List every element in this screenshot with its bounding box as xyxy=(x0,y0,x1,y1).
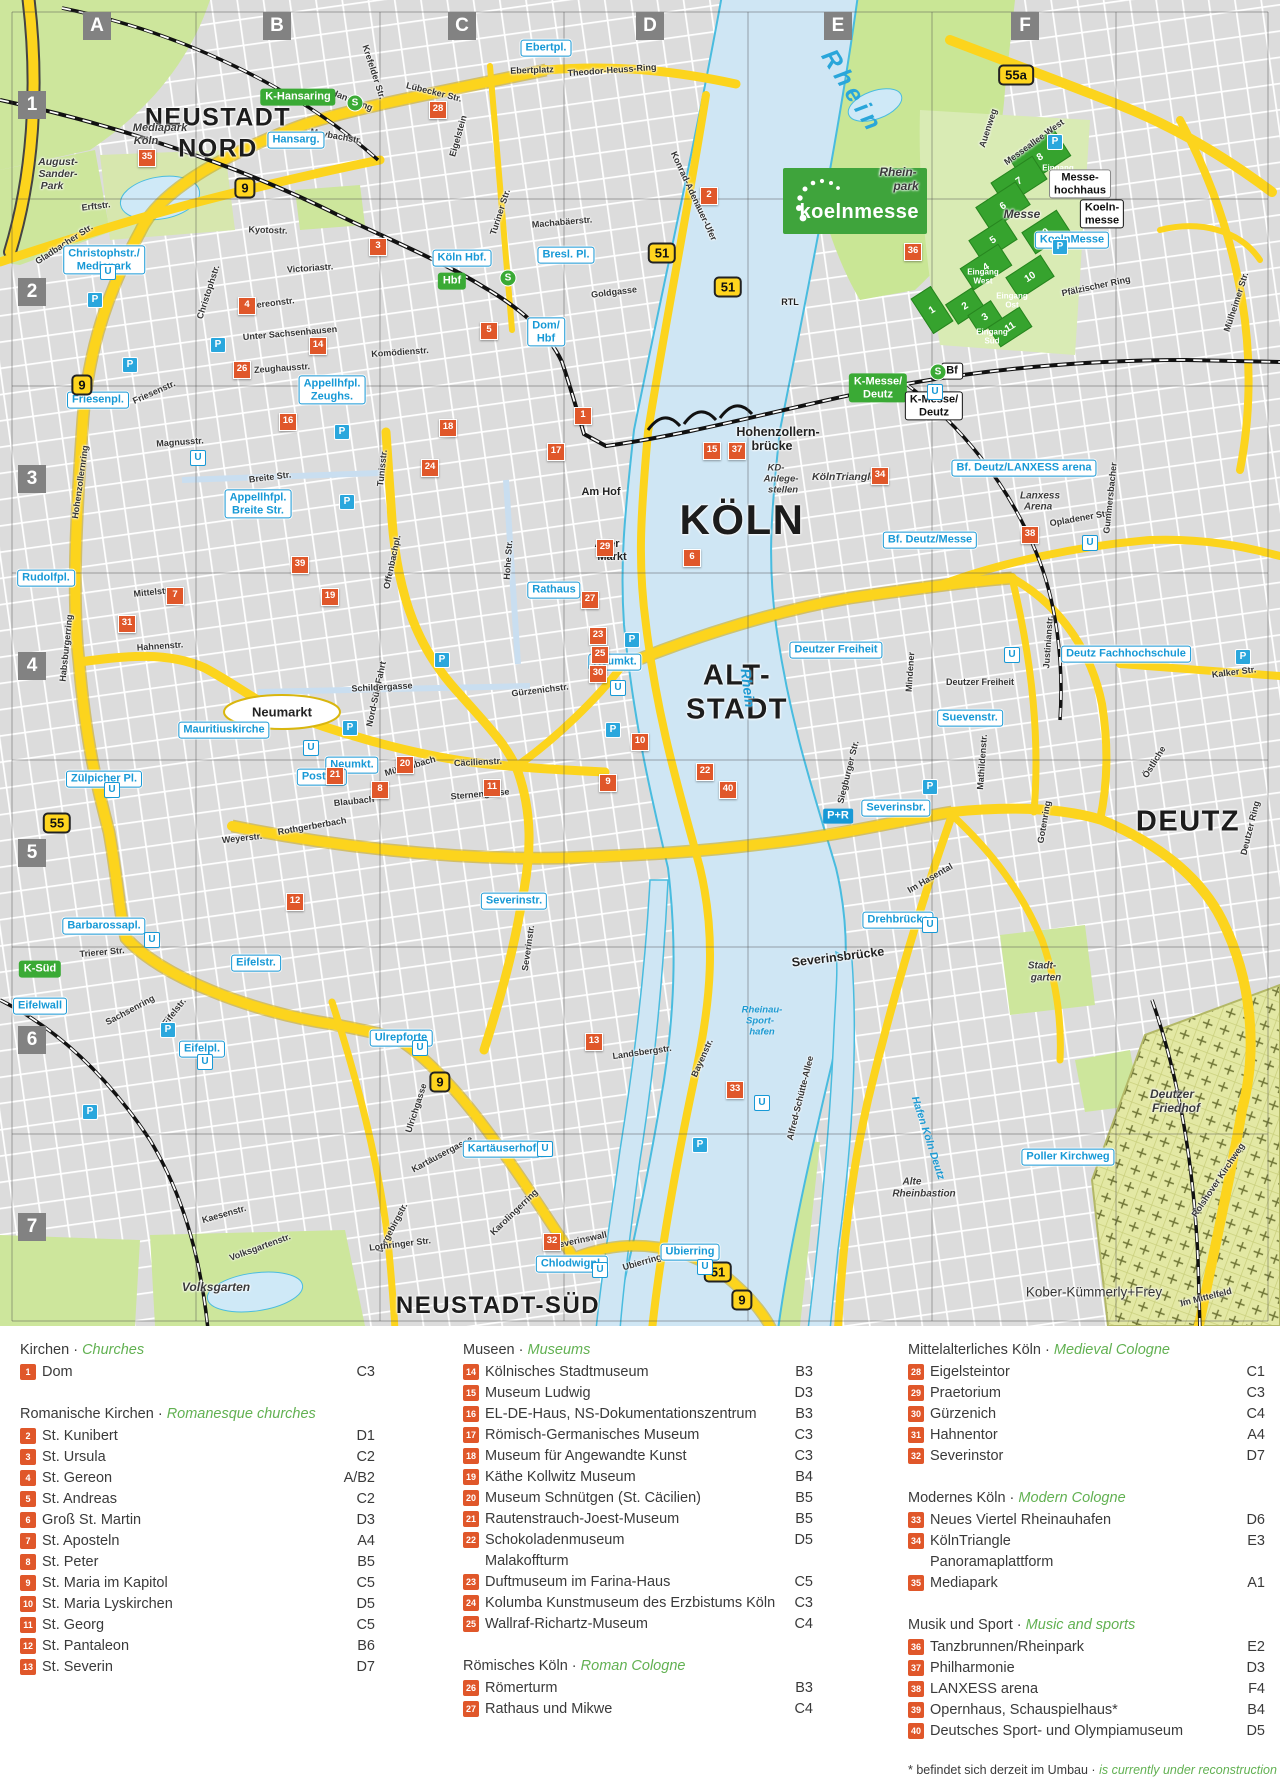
poi-marker-36[interactable]: 36 xyxy=(904,243,922,261)
u-bahn-icon[interactable]: U xyxy=(592,1262,608,1278)
legend-item-gridref: A1 xyxy=(1247,1575,1265,1591)
map-badge[interactable]: Poller Kirchweg xyxy=(1021,1149,1114,1166)
map-badge[interactable]: Appellhfpl.Breite Str. xyxy=(225,489,292,518)
legend-item-label: Gürzenich xyxy=(930,1406,1246,1422)
legend-item-label: Tanzbrunnen/Rheinpark xyxy=(930,1639,1247,1655)
legend-item-gridref: C4 xyxy=(794,1701,813,1717)
poi-marker-5[interactable]: 5 xyxy=(480,322,498,340)
legend-item-number: 33 xyxy=(908,1512,924,1528)
grid-row-label-2: 2 xyxy=(18,278,46,306)
map-badge[interactable]: Ubierring xyxy=(661,1244,720,1261)
legend-item-gridref: C3 xyxy=(1246,1385,1265,1401)
legend-item-number: 17 xyxy=(463,1427,479,1443)
legend-item-gridref: C3 xyxy=(794,1448,813,1464)
u-bahn-icon[interactable]: U xyxy=(754,1095,770,1111)
legend-section: Museen · Museums14Kölnisches Stadtmuseum… xyxy=(463,1340,813,1634)
legend-item-number xyxy=(463,1553,479,1569)
legend-item: 10St. Maria LyskirchenD5 xyxy=(20,1593,375,1614)
grid-col-label-A: A xyxy=(83,12,111,40)
u-bahn-icon[interactable]: U xyxy=(412,1040,428,1056)
poi-marker-18[interactable]: 18 xyxy=(439,419,457,437)
legend-item-gridref: B3 xyxy=(795,1680,813,1696)
legend-item-number: 25 xyxy=(463,1616,479,1632)
poi-marker-11[interactable]: 11 xyxy=(483,779,501,797)
poi-marker-14[interactable]: 14 xyxy=(309,337,327,355)
map-label: KD- xyxy=(768,463,785,474)
legend-item: 8St. PeterB5 xyxy=(20,1551,375,1572)
legend-item-gridref: C2 xyxy=(356,1449,375,1465)
legend-item-label: St. Maria im Kapitol xyxy=(42,1575,356,1591)
title-separator: · xyxy=(515,1342,528,1358)
legend-item: 34KölnTriangleE3 xyxy=(908,1530,1265,1551)
map-badge[interactable]: Severinstr. xyxy=(481,893,547,910)
legend-section-title: Musik und Sport · Music and sports xyxy=(908,1615,1265,1636)
grid-row-label-7: 7 xyxy=(18,1213,46,1241)
map-label: Neumarkt xyxy=(252,705,312,720)
legend-item-label: Severinstor xyxy=(930,1448,1246,1464)
legend-item-gridref: C3 xyxy=(356,1364,375,1380)
legend-item-number: 27 xyxy=(463,1701,479,1717)
legend-item-number: 35 xyxy=(908,1575,924,1591)
poi-marker-34[interactable]: 34 xyxy=(871,467,889,485)
legend-item: 3St. UrsulaC2 xyxy=(20,1446,375,1467)
legend-item-gridref: F4 xyxy=(1248,1681,1265,1697)
poi-marker-27[interactable]: 27 xyxy=(581,591,599,609)
legend-title-de: Romanische Kirchen xyxy=(20,1406,154,1422)
map-label: Arena xyxy=(1024,502,1052,513)
legend-item-label: Wallraf-Richartz-Museum xyxy=(485,1616,794,1632)
footnote-separator: · xyxy=(1088,1763,1099,1777)
badge-line: Deutz xyxy=(910,406,958,419)
map-badge[interactable]: Bresl. Pl. xyxy=(537,247,594,264)
legend-item: 11St. GeorgC5 xyxy=(20,1614,375,1635)
u-bahn-icon[interactable]: U xyxy=(100,264,116,280)
poi-marker-22[interactable]: 22 xyxy=(696,763,714,781)
legend-item: 20Museum Schnütgen (St. Cäcilien)B5 xyxy=(463,1487,813,1508)
map-badge[interactable]: Hansarg. xyxy=(267,132,324,149)
legend-item: 31HahnentorA4 xyxy=(908,1424,1265,1445)
map-badge[interactable]: Kartäuserhof xyxy=(463,1141,541,1158)
legend-item-gridref: E3 xyxy=(1247,1533,1265,1549)
legend-item-label: Eigelsteintor xyxy=(930,1364,1246,1380)
u-bahn-icon[interactable]: U xyxy=(927,384,943,400)
legend-section: Musik und Sport · Music and sports36Tanz… xyxy=(908,1615,1265,1741)
koelnmesse-logo-text: koelnmesse xyxy=(799,201,919,224)
legend-item: 24Kolumba Kunstmuseum des Erzbistums Köl… xyxy=(463,1592,813,1613)
legend-item-gridref: B3 xyxy=(795,1406,813,1422)
legend-item-label: Panoramaplattform xyxy=(930,1554,1265,1570)
legend-item: 30GürzenichC4 xyxy=(908,1403,1265,1424)
legend-item-gridref: C5 xyxy=(356,1617,375,1633)
legend-item-label: St. Aposteln xyxy=(42,1533,357,1549)
badge-line: Appellhfpl. xyxy=(304,377,361,390)
legend-item-number: 31 xyxy=(908,1427,924,1443)
legend-title-de: Kirchen xyxy=(20,1342,69,1358)
route-badge: 51 xyxy=(714,277,742,298)
map-legend: Kirchen · Churches1DomC3Romanische Kirch… xyxy=(0,1326,1280,1776)
map-label: ALT- xyxy=(703,660,771,693)
parking-icon[interactable]: P xyxy=(1235,649,1251,665)
map-badge[interactable]: Appellhfpl.Zeughs. xyxy=(299,375,366,404)
u-bahn-icon[interactable]: U xyxy=(697,1259,713,1275)
legend-section: Mittelalterliches Köln · Medieval Cologn… xyxy=(908,1340,1265,1466)
legend-item-number: 37 xyxy=(908,1660,924,1676)
grid-col-label-D: D xyxy=(636,12,664,40)
grid-col-label-B: B xyxy=(263,12,291,40)
map-badge[interactable]: Bf. Deutz/Messe xyxy=(883,532,977,549)
legend-item-label: Rathaus und Mikwe xyxy=(485,1701,794,1717)
parking-icon[interactable]: P xyxy=(342,720,358,736)
parking-icon[interactable]: P xyxy=(922,779,938,795)
legend-item-number: 6 xyxy=(20,1512,36,1528)
title-separator: · xyxy=(1041,1342,1054,1358)
parking-icon[interactable]: P xyxy=(339,494,355,510)
legend-item: Panoramaplattform xyxy=(908,1551,1265,1572)
legend-item: 13St. SeverinD7 xyxy=(20,1656,375,1677)
map-badge[interactable]: Deutz Fachhochschule xyxy=(1061,646,1191,663)
poi-marker-24[interactable]: 24 xyxy=(421,459,439,477)
grid-row-label-5: 5 xyxy=(18,839,46,867)
poi-marker-25[interactable]: 25 xyxy=(591,646,609,664)
poi-marker-26[interactable]: 26 xyxy=(233,361,251,379)
poi-marker-31[interactable]: 31 xyxy=(118,615,136,633)
poi-marker-30[interactable]: 30 xyxy=(589,665,607,683)
map-label: Anlege- xyxy=(764,474,799,485)
legend-item-label: Groß St. Martin xyxy=(42,1512,356,1528)
map-label: garten xyxy=(1031,973,1062,984)
poi-marker-13[interactable]: 13 xyxy=(585,1033,603,1051)
legend-item-number: 30 xyxy=(908,1406,924,1422)
poi-marker-7[interactable]: 7 xyxy=(166,587,184,605)
street-label: Kyotostr. xyxy=(248,224,287,235)
title-separator: · xyxy=(69,1342,82,1358)
legend-item-number: 10 xyxy=(20,1596,36,1612)
parking-icon[interactable]: P xyxy=(605,722,621,738)
badge-line: Hbf xyxy=(532,332,560,345)
map-badge[interactable]: Ebertpl. xyxy=(521,40,572,57)
poi-marker-3[interactable]: 3 xyxy=(369,238,387,256)
parking-icon[interactable]: P xyxy=(160,1022,176,1038)
u-bahn-icon[interactable]: U xyxy=(303,740,319,756)
map-label: Rhein- xyxy=(879,165,916,179)
parking-icon[interactable]: P xyxy=(87,292,103,308)
legend-item-number: 8 xyxy=(20,1554,36,1570)
u-bahn-icon[interactable]: U xyxy=(1082,535,1098,551)
map-badge[interactable]: Dom/Hbf xyxy=(527,317,565,346)
map-badge[interactable]: K-Hansaring xyxy=(260,89,335,106)
legend-item-number: 15 xyxy=(463,1385,479,1401)
grid-row-label-3: 3 xyxy=(18,465,46,493)
title-separator: · xyxy=(568,1658,581,1674)
legend-item: 33Neues Viertel RheinauhafenD6 xyxy=(908,1509,1265,1530)
poi-marker-21[interactable]: 21 xyxy=(326,767,344,785)
legend-item-label: Römerturm xyxy=(485,1680,795,1696)
legend-title-en: Modern Cologne xyxy=(1018,1490,1125,1506)
parking-icon[interactable]: P xyxy=(434,652,450,668)
footnote-en: is currently under reconstruction xyxy=(1099,1763,1277,1777)
badge-line: K-Messe/ xyxy=(854,375,902,388)
legend-column-1: Kirchen · Churches1DomC3Romanische Kirch… xyxy=(20,1340,375,1699)
poi-marker-32[interactable]: 32 xyxy=(543,1233,561,1251)
poi-marker-2[interactable]: 2 xyxy=(700,187,718,205)
grid-col-label-C: C xyxy=(448,12,476,40)
legend-item-label: KölnTriangle xyxy=(930,1533,1247,1549)
legend-item-gridref: C1 xyxy=(1246,1364,1265,1380)
legend-title-en: Museums xyxy=(527,1342,590,1358)
poi-marker-37[interactable]: 37 xyxy=(728,442,746,460)
legend-item-number: 13 xyxy=(20,1659,36,1675)
legend-item: 39Opernhaus, Schauspielhaus*B4 xyxy=(908,1699,1265,1720)
poi-marker-9[interactable]: 9 xyxy=(599,774,617,792)
parking-icon[interactable]: P xyxy=(692,1137,708,1153)
legend-section-title: Römisches Köln · Roman Cologne xyxy=(463,1656,813,1677)
poi-marker-16[interactable]: 16 xyxy=(279,413,297,431)
badge-line: Dom/ xyxy=(532,319,560,332)
grid-col-label-E: E xyxy=(824,12,852,40)
poi-marker-20[interactable]: 20 xyxy=(396,756,414,774)
map-label: Sport- xyxy=(746,1016,774,1027)
poi-marker-1[interactable]: 1 xyxy=(574,407,592,425)
legend-section: Kirchen · Churches1DomC3 xyxy=(20,1340,375,1382)
legend-item-label: St. Andreas xyxy=(42,1491,356,1507)
legend-item-number: 23 xyxy=(463,1574,479,1590)
legend-item: 22SchokoladenmuseumD5 xyxy=(463,1529,813,1550)
legend-item-number: 4 xyxy=(20,1470,36,1486)
legend-item: 26RömerturmB3 xyxy=(463,1677,813,1698)
map-label: brücke xyxy=(752,439,793,453)
legend-item-gridref: B6 xyxy=(357,1638,375,1654)
poi-marker-35[interactable]: 35 xyxy=(138,149,156,167)
legend-item-gridref: C4 xyxy=(1246,1406,1265,1422)
map-label: KölnTriangle xyxy=(812,471,876,483)
badge-line: hochhaus xyxy=(1054,184,1106,197)
map-badge[interactable]: K-Süd xyxy=(19,961,61,978)
poi-marker-33[interactable]: 33 xyxy=(726,1081,744,1099)
poi-marker-4[interactable]: 4 xyxy=(238,297,256,315)
map-label: West xyxy=(974,277,993,286)
badge-line: Koeln- xyxy=(1085,201,1119,214)
parking-icon[interactable]: P xyxy=(122,357,138,373)
u-bahn-icon[interactable]: U xyxy=(610,680,626,696)
legend-item-label: Dom xyxy=(42,1364,356,1380)
legend-item: 6Groß St. MartinD3 xyxy=(20,1509,375,1530)
legend-item-label: St. Maria Lyskirchen xyxy=(42,1596,356,1612)
poi-marker-39[interactable]: 39 xyxy=(291,556,309,574)
footnote-de: * befindet sich derzeit im Umbau xyxy=(908,1763,1088,1777)
map-badge[interactable]: K-Messe/Deutz xyxy=(849,373,907,402)
map-badge[interactable]: KoelnMesse xyxy=(1035,232,1109,249)
s-bahn-icon[interactable]: S xyxy=(500,270,517,287)
u-bahn-icon[interactable]: U xyxy=(197,1054,213,1070)
legend-item-number: 40 xyxy=(908,1723,924,1739)
legend-section-title: Romanische Kirchen · Romanesque churches xyxy=(20,1404,375,1425)
legend-item-number: 21 xyxy=(463,1511,479,1527)
poi-marker-23[interactable]: 23 xyxy=(589,627,607,645)
map-badge[interactable]: Suevenstr. xyxy=(937,710,1003,727)
legend-item-gridref: A4 xyxy=(357,1533,375,1549)
legend-item-label: Neues Viertel Rheinauhafen xyxy=(930,1512,1246,1528)
map-badge[interactable]: Messe-hochhaus xyxy=(1049,169,1111,198)
legend-item-label: Mediapark xyxy=(930,1575,1247,1591)
poi-marker-28[interactable]: 28 xyxy=(429,101,447,119)
legend-section: Romanische Kirchen · Romanesque churches… xyxy=(20,1404,375,1677)
legend-item-gridref: B3 xyxy=(795,1364,813,1380)
title-separator: · xyxy=(1006,1490,1019,1506)
map-badge[interactable]: Eifelwall xyxy=(13,998,67,1015)
badge-line: Christophstr./ xyxy=(68,247,140,260)
map-label: Eingang xyxy=(996,292,1028,301)
legend-item: 29PraetoriumC3 xyxy=(908,1382,1265,1403)
poi-marker-29[interactable]: 29 xyxy=(596,539,614,557)
map-label: Am Hof xyxy=(581,486,620,498)
poi-marker-38[interactable]: 38 xyxy=(1021,526,1039,544)
legend-item-label: St. Peter xyxy=(42,1554,357,1570)
legend-item-number: 34 xyxy=(908,1533,924,1549)
map-label: Eingang xyxy=(976,328,1008,337)
legend-item-gridref: D5 xyxy=(1246,1723,1265,1739)
legend-item-label: St. Ursula xyxy=(42,1449,356,1465)
legend-column-2: Museen · Museums14Kölnisches Stadtmuseum… xyxy=(463,1340,813,1741)
parking-icon[interactable]: P xyxy=(1047,134,1063,150)
legend-item-label: Schokoladenmuseum xyxy=(485,1532,794,1548)
route-badge: 9 xyxy=(731,1290,752,1311)
u-bahn-icon[interactable]: U xyxy=(1004,647,1020,663)
route-badge: 55 xyxy=(43,813,71,834)
poi-marker-8[interactable]: 8 xyxy=(371,781,389,799)
poi-marker-12[interactable]: 12 xyxy=(286,893,304,911)
poi-marker-15[interactable]: 15 xyxy=(703,442,721,460)
legend-item-number: 14 xyxy=(463,1364,479,1380)
street-label: Deutzer Freiheit xyxy=(946,677,1014,687)
badge-line: Messe- xyxy=(1054,171,1106,184)
title-separator: · xyxy=(154,1406,167,1422)
legend-item-gridref: A4 xyxy=(1247,1427,1265,1443)
map-badge[interactable]: Hbf xyxy=(438,273,466,290)
legend-item: 36Tanzbrunnen/RheinparkE2 xyxy=(908,1636,1265,1657)
map-label: Rheinau- xyxy=(742,1005,783,1016)
poi-marker-40[interactable]: 40 xyxy=(719,781,737,799)
legend-item-label: Praetorium xyxy=(930,1385,1246,1401)
u-bahn-icon[interactable]: U xyxy=(190,450,206,466)
legend-item-number: 12 xyxy=(20,1638,36,1654)
legend-item-gridref: D3 xyxy=(794,1385,813,1401)
map-badge[interactable]: Mauritiuskirche xyxy=(178,722,269,739)
legend-item: 37PhilharmonieD3 xyxy=(908,1657,1265,1678)
legend-item: 21Rautenstrauch-Joest-MuseumB5 xyxy=(463,1508,813,1529)
parking-icon[interactable]: P xyxy=(1052,239,1068,255)
map-label: Messe xyxy=(1004,207,1041,221)
legend-item-number: 3 xyxy=(20,1449,36,1465)
legend-title-en: Romanesque churches xyxy=(167,1406,316,1422)
parking-icon[interactable]: P xyxy=(82,1104,98,1120)
map-badge[interactable]: Rathaus xyxy=(527,582,580,599)
map-label: STADT xyxy=(686,694,788,727)
map-badge[interactable]: Koeln-messe xyxy=(1080,199,1124,228)
parking-icon[interactable]: P xyxy=(334,424,350,440)
legend-item-label: Philharmonie xyxy=(930,1660,1246,1676)
legend-item-number: 22 xyxy=(463,1532,479,1548)
map-label: DEUTZ xyxy=(1136,806,1240,839)
s-bahn-icon[interactable]: S xyxy=(347,95,364,112)
legend-item-number: 18 xyxy=(463,1448,479,1464)
legend-item-label: Römisch-Germanisches Museum xyxy=(485,1427,794,1443)
legend-title-de: Museen xyxy=(463,1342,515,1358)
map-label: Volksgarten xyxy=(182,1280,250,1294)
map-badge[interactable]: Deutzer Freiheit xyxy=(789,642,882,659)
poi-marker-19[interactable]: 19 xyxy=(321,588,339,606)
legend-footnote: * befindet sich derzeit im Umbau · is cu… xyxy=(908,1763,1265,1777)
badge-line: messe xyxy=(1085,214,1119,227)
map-label: stellen xyxy=(768,485,798,496)
legend-item-label: St. Pantaleon xyxy=(42,1638,357,1654)
map-label: Hohenzollern- xyxy=(736,425,819,439)
legend-item-number: 39 xyxy=(908,1702,924,1718)
poi-marker-6[interactable]: 6 xyxy=(683,549,701,567)
map-label: RTL xyxy=(781,297,799,307)
legend-item: 18Museum für Angewandte KunstC3 xyxy=(463,1445,813,1466)
u-bahn-icon[interactable]: U xyxy=(537,1141,553,1157)
legend-item-gridref: C3 xyxy=(794,1427,813,1443)
parking-icon[interactable]: P xyxy=(210,337,226,353)
legend-section-title: Kirchen · Churches xyxy=(20,1340,375,1361)
map-badge[interactable]: Köln Hbf. xyxy=(433,250,492,267)
legend-section: Römisches Köln · Roman Cologne26Römertur… xyxy=(463,1656,813,1719)
map-badge[interactable]: Barbarossapl. xyxy=(62,918,145,935)
poi-marker-17[interactable]: 17 xyxy=(547,443,565,461)
legend-section: Modernes Köln · Modern Cologne33Neues Vi… xyxy=(908,1488,1265,1593)
badge-line: Zeughs. xyxy=(304,390,361,403)
grid-row-label-4: 4 xyxy=(18,652,46,680)
parking-icon[interactable]: P xyxy=(624,632,640,648)
legend-title-en: Roman Cologne xyxy=(581,1658,686,1674)
legend-item-label: St. Kunibert xyxy=(42,1428,356,1444)
legend-item: Malakoffturm xyxy=(463,1550,813,1571)
legend-item-label: Museum Ludwig xyxy=(485,1385,794,1401)
map-badge[interactable]: Severinsbr. xyxy=(861,800,930,817)
map-badge[interactable]: Eifelstr. xyxy=(231,955,281,972)
poi-marker-10[interactable]: 10 xyxy=(631,733,649,751)
legend-item-gridref: B5 xyxy=(357,1554,375,1570)
legend-item-label: St. Severin xyxy=(42,1659,356,1675)
legend-item-gridref: D3 xyxy=(1246,1660,1265,1676)
map-label: hafen xyxy=(749,1027,774,1038)
u-bahn-icon[interactable]: U xyxy=(144,932,160,948)
map-badge[interactable]: Bf. Deutz/LANXESS arena xyxy=(951,460,1096,477)
map-label: Rheinbastion xyxy=(892,1189,955,1200)
legend-item-number: 19 xyxy=(463,1469,479,1485)
map-label: Süd xyxy=(984,337,999,346)
grid-row-label-1: 1 xyxy=(18,91,46,119)
legend-item-gridref: D5 xyxy=(794,1532,813,1548)
city-map: 8765941023111 koelnmesse NEUSTADTNORDKÖL… xyxy=(0,0,1280,1326)
legend-item-number: 7 xyxy=(20,1533,36,1549)
legend-item-number: 29 xyxy=(908,1385,924,1401)
map-label: August- xyxy=(38,156,78,168)
s-bahn-icon[interactable]: S xyxy=(930,364,947,381)
map-badge[interactable]: Rudolfpl. xyxy=(17,570,75,587)
legend-item: 4St. GereonA/B2 xyxy=(20,1467,375,1488)
route-badge: 55a xyxy=(998,65,1034,86)
legend-item: 35MediaparkA1 xyxy=(908,1572,1265,1593)
u-bahn-icon[interactable]: U xyxy=(104,782,120,798)
map-badge[interactable]: P+R xyxy=(823,809,853,824)
u-bahn-icon[interactable]: U xyxy=(922,917,938,933)
legend-section-title: Mittelalterliches Köln · Medieval Cologn… xyxy=(908,1340,1265,1361)
map-label: Friedhof xyxy=(1152,1101,1200,1115)
legend-column-3: Mittelalterliches Köln · Medieval Cologn… xyxy=(908,1340,1265,1777)
legend-title-de: Musik und Sport xyxy=(908,1617,1013,1633)
legend-item-label: Malakoffturm xyxy=(485,1553,813,1569)
